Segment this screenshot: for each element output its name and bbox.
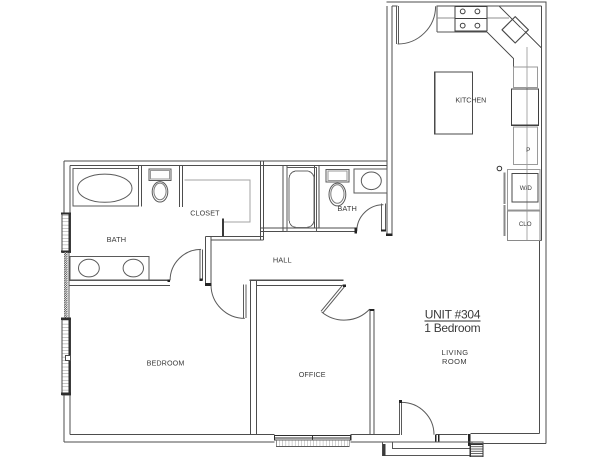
- svg-text:BATH: BATH: [107, 235, 127, 244]
- svg-text:BATH: BATH: [337, 204, 357, 213]
- svg-text:CLOSET: CLOSET: [190, 208, 220, 217]
- svg-text:1 Bedroom: 1 Bedroom: [424, 321, 480, 335]
- svg-text:BEDROOM: BEDROOM: [147, 359, 185, 368]
- svg-text:UNIT #304: UNIT #304: [425, 307, 481, 321]
- svg-text:OFFICE: OFFICE: [299, 370, 326, 379]
- svg-text:LIVING: LIVING: [442, 348, 469, 357]
- svg-text:CLO: CLO: [519, 221, 532, 228]
- svg-text:HALL: HALL: [273, 255, 292, 264]
- svg-text:KITCHEN: KITCHEN: [455, 96, 486, 105]
- svg-text:W/D: W/D: [520, 185, 533, 192]
- svg-text:ROOM: ROOM: [442, 357, 467, 366]
- svg-text:P: P: [526, 147, 530, 154]
